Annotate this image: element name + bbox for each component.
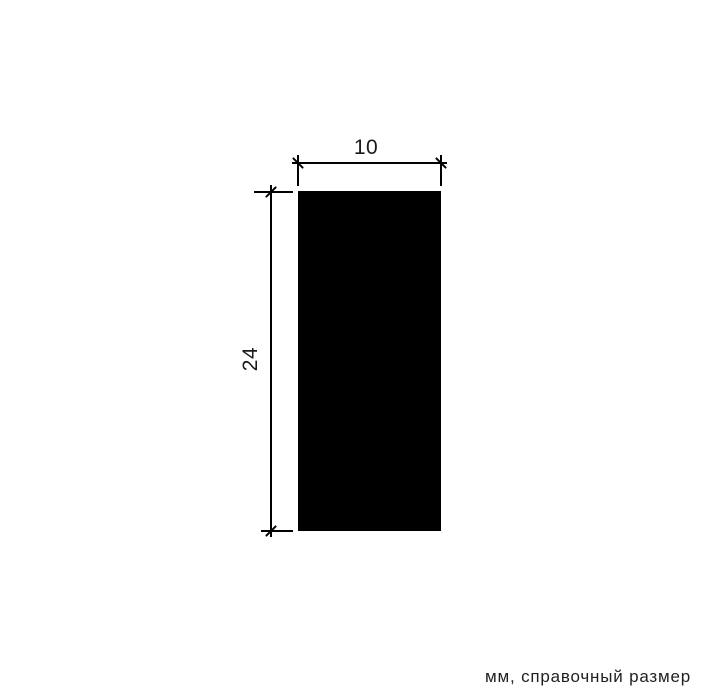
height-dimension-label: 24 bbox=[239, 347, 262, 371]
technical-drawing: 10 24 bbox=[0, 0, 701, 699]
width-dimension-label: 10 bbox=[354, 136, 378, 159]
profile-rectangle bbox=[298, 191, 441, 531]
drawing-canvas: 10 24 мм, справочный размер bbox=[0, 0, 701, 699]
units-note: мм, справочный размер bbox=[485, 667, 691, 687]
